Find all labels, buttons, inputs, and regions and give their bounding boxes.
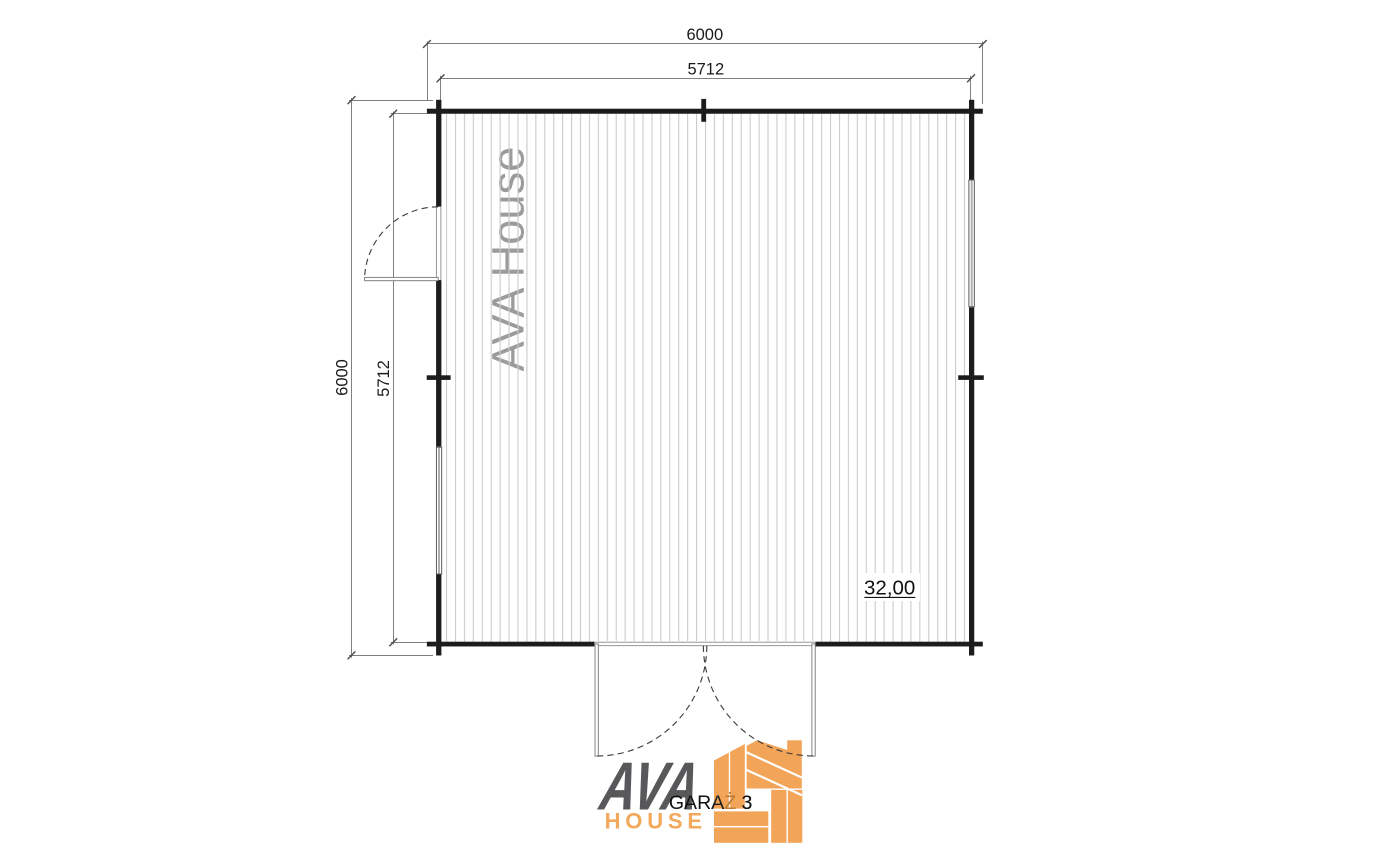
svg-text:6000: 6000: [686, 26, 723, 44]
svg-text:Ż: Ż: [724, 791, 736, 814]
svg-text:6000: 6000: [334, 359, 352, 396]
svg-text:3: 3: [742, 792, 753, 814]
svg-text:32,00: 32,00: [864, 576, 915, 599]
svg-text:5712: 5712: [687, 60, 724, 78]
svg-text:5712: 5712: [375, 360, 393, 397]
svg-text:A: A: [711, 792, 724, 814]
